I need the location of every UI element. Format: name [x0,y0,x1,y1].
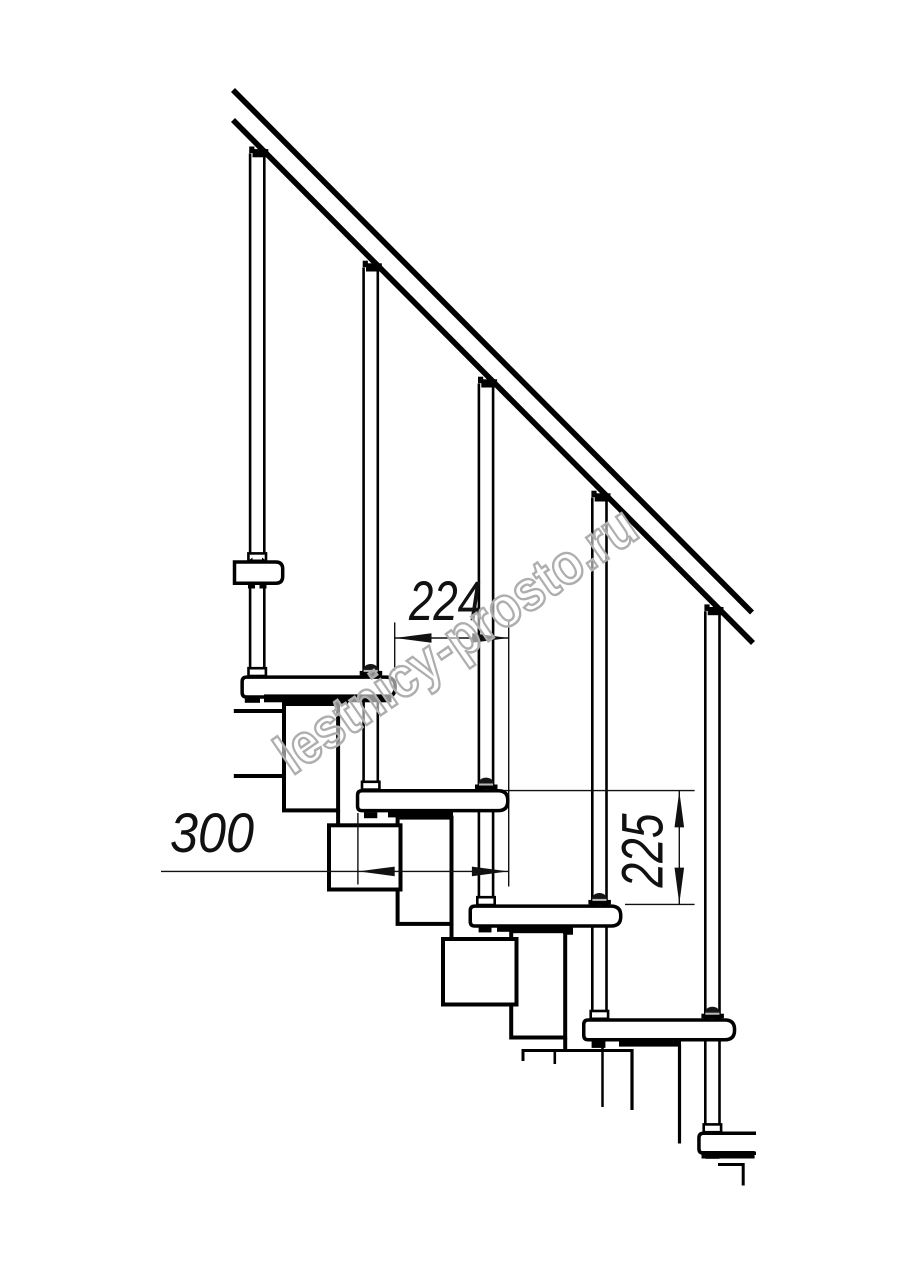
svg-text:300: 300 [170,801,254,864]
svg-text:225: 225 [610,813,675,888]
